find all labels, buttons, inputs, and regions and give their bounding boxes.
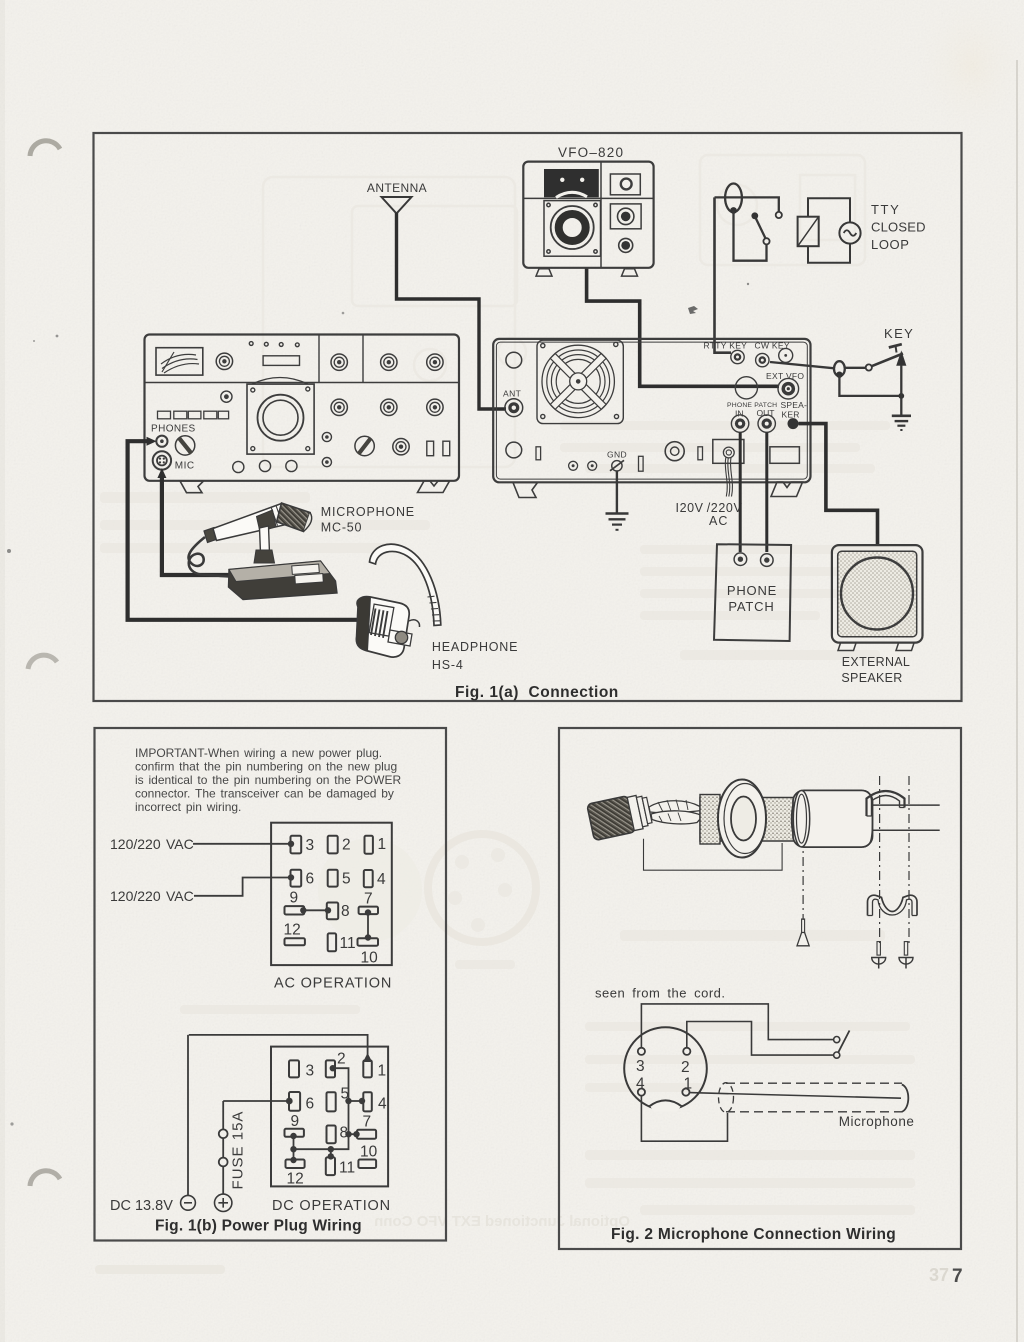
svg-text:MICROPHONE: MICROPHONE (321, 505, 415, 519)
svg-text:SPEA-: SPEA- (781, 400, 808, 410)
svg-text:Fig. 2 Microphone Connection: Fig. 2 Microphone Connection Wiring (611, 1226, 896, 1243)
svg-text:11: 11 (340, 935, 356, 952)
svg-text:3: 3 (306, 837, 315, 854)
svg-text:RTTY KEY: RTTY KEY (704, 341, 748, 351)
svg-text:11: 11 (339, 1160, 355, 1177)
svg-text:ANT: ANT (503, 389, 521, 399)
svg-text:HS-4: HS-4 (432, 658, 464, 672)
svg-text:4: 4 (378, 1096, 387, 1113)
svg-text:3: 3 (636, 1058, 645, 1075)
svg-text:3: 3 (306, 1063, 315, 1080)
svg-text:confirm that the pin numbering: confirm that the pin numbering on the ne… (135, 760, 397, 774)
svg-text:Optional Junctioned EXT VFO Co: Optional Junctioned EXT VFO Conn (374, 1213, 630, 1230)
svg-text:12: 12 (284, 922, 301, 939)
svg-text:Fig. 1(a) Connection: Fig. 1(a) Connection (455, 684, 619, 701)
svg-text:Microphone: Microphone (839, 1114, 915, 1129)
svg-text:FUSE 15A: FUSE 15A (230, 1111, 247, 1190)
svg-text:IN: IN (735, 409, 744, 419)
svg-text:HEADPHONE: HEADPHONE (432, 640, 518, 654)
svg-text:8: 8 (341, 903, 350, 920)
svg-text:EXTERNAL: EXTERNAL (842, 655, 910, 669)
svg-text:KER: KER (782, 410, 800, 420)
svg-text:SPEAKER: SPEAKER (841, 671, 902, 685)
svg-text:10: 10 (361, 950, 379, 967)
svg-text:ANTENNA: ANTENNA (367, 181, 427, 195)
svg-text:8: 8 (340, 1125, 349, 1142)
svg-text:2: 2 (337, 1051, 346, 1068)
svg-text:seen from the cord.: seen from the cord. (595, 986, 726, 1001)
svg-text:VFO–820: VFO–820 (558, 145, 624, 160)
svg-text:GND: GND (607, 450, 627, 460)
svg-text:PATCH: PATCH (728, 599, 774, 614)
svg-text:PHONES: PHONES (151, 424, 196, 435)
svg-text:PHONE: PHONE (727, 583, 777, 598)
svg-text:12: 12 (287, 1171, 304, 1188)
svg-text:4: 4 (377, 871, 386, 888)
svg-text:5: 5 (341, 1086, 350, 1103)
svg-text:120/220 VAC: 120/220 VAC (110, 836, 194, 852)
svg-text:2: 2 (342, 837, 351, 854)
svg-text:incorrect pin wiring.: incorrect pin wiring. (135, 800, 241, 814)
svg-text:120/220 VAC: 120/220 VAC (110, 888, 194, 904)
svg-text:6: 6 (306, 871, 315, 888)
svg-text:6: 6 (306, 1096, 315, 1113)
svg-text:AC: AC (709, 514, 728, 528)
svg-text:connector. The transceiver can: connector. The transceiver can be damage… (135, 787, 394, 801)
svg-text:1: 1 (684, 1076, 693, 1093)
svg-text:TTY: TTY (871, 202, 900, 217)
svg-text:DC OPERATION: DC OPERATION (272, 1198, 391, 1214)
svg-text:2: 2 (681, 1059, 690, 1076)
svg-text:37: 37 (929, 1265, 949, 1285)
svg-text:CLOSED: CLOSED (871, 220, 926, 235)
svg-text:9: 9 (291, 1113, 300, 1130)
svg-text:MC-50: MC-50 (321, 521, 363, 535)
svg-text:7: 7 (363, 1114, 372, 1131)
svg-text:AC OPERATION: AC OPERATION (274, 976, 392, 992)
svg-text:LOOP: LOOP (871, 237, 910, 252)
svg-text:5: 5 (342, 871, 351, 888)
svg-text:1: 1 (378, 1063, 387, 1080)
svg-text:is identical to the pin number: is identical to the pin numbering on the… (135, 773, 401, 787)
svg-text:1: 1 (378, 836, 387, 853)
svg-text:9: 9 (290, 890, 299, 907)
svg-text:I20V /220V: I20V /220V (676, 501, 743, 515)
svg-text:7: 7 (364, 891, 373, 908)
svg-text:Fig. 1(b) Power Plug Wiring: Fig. 1(b) Power Plug Wiring (155, 1218, 362, 1235)
svg-text:10: 10 (360, 1144, 378, 1161)
svg-text:7: 7 (952, 1266, 963, 1287)
svg-text:DC 13.8V: DC 13.8V (110, 1198, 173, 1214)
svg-text:KEY: KEY (884, 326, 914, 341)
svg-text:4: 4 (636, 1076, 645, 1093)
svg-text:MIC: MIC (175, 461, 195, 472)
svg-text:IMPORTANT-When wiring a new po: IMPORTANT-When wiring a new power plug. (135, 746, 382, 760)
